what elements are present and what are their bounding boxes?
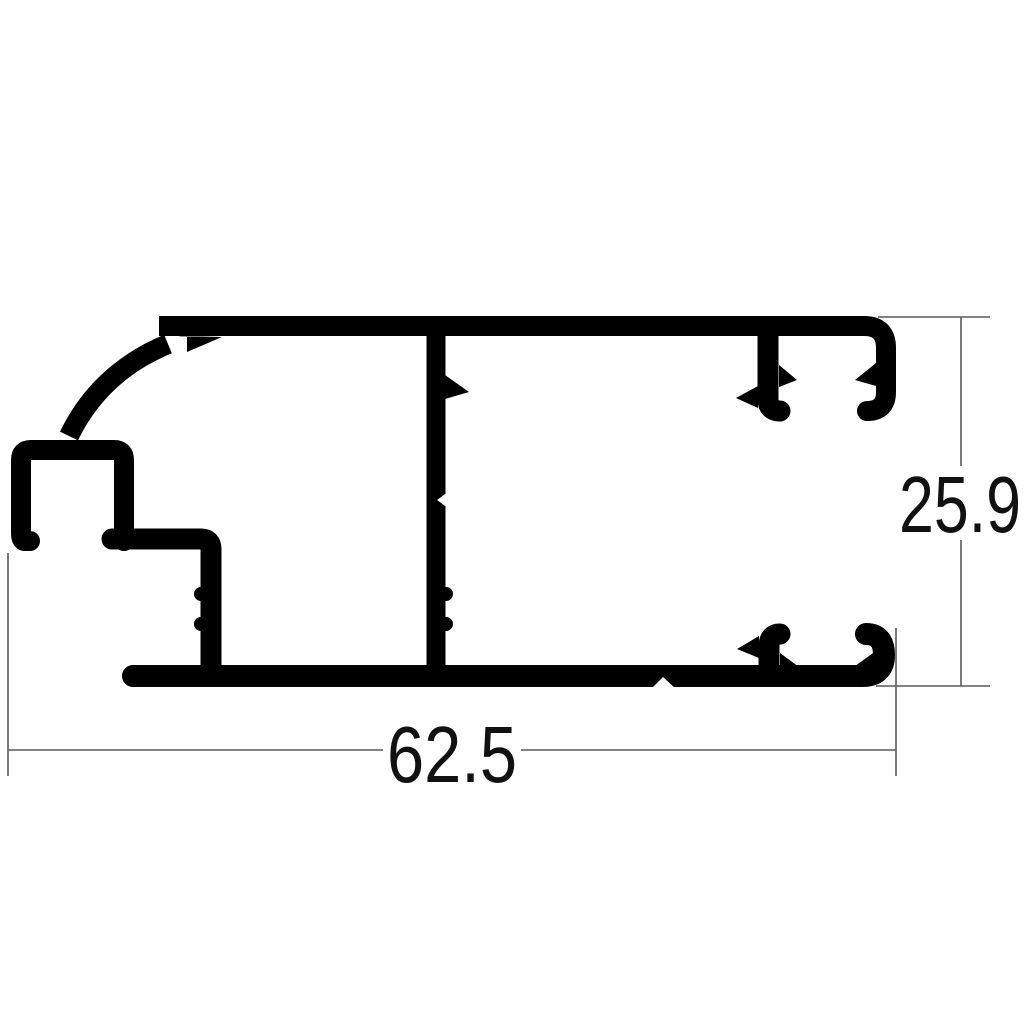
step-ledge-and-wall	[112, 539, 211, 676]
clip-box	[21, 450, 124, 541]
bottom-hook-barb-left	[737, 636, 759, 658]
web-barb	[445, 375, 469, 399]
wall-nub-upper	[194, 587, 208, 601]
width-dimension-label: 62.5	[387, 710, 517, 799]
top-rightwall-barb	[855, 363, 876, 386]
glazing-arc	[69, 344, 168, 436]
web-nub-lower	[439, 617, 453, 631]
top-gasket-hook	[768, 330, 780, 411]
right-wall-curl-tip	[857, 401, 877, 421]
top-flange-left-step	[159, 316, 173, 336]
top-hook-barb-right	[779, 365, 797, 387]
wall-nub-lower	[194, 617, 208, 631]
top-flange-tooth	[179, 336, 222, 352]
height-dimension-label: 25.9	[899, 460, 1021, 549]
drawing-canvas: 62.5 25.9	[0, 0, 1024, 1024]
extrusion-profile	[21, 316, 886, 689]
bottom-gasket-hook	[769, 634, 780, 674]
top-hook-barb-left	[736, 386, 758, 408]
profile-drawing: 62.5 25.9	[0, 0, 1024, 1024]
web-nub-upper	[439, 587, 453, 601]
